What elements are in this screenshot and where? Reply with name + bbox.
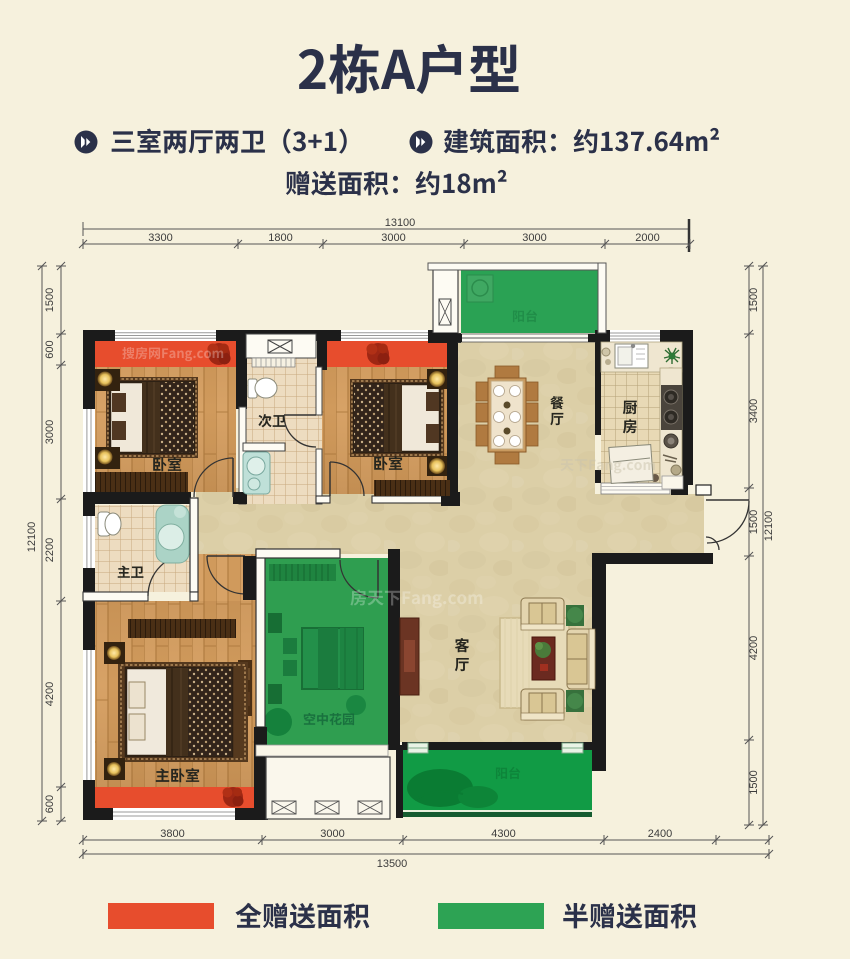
svg-text:3300: 3300	[148, 232, 172, 244]
svg-text:600: 600	[44, 795, 56, 813]
svg-text:3000: 3000	[381, 232, 405, 244]
svg-text:4300: 4300	[491, 828, 515, 840]
svg-text:1500: 1500	[748, 288, 760, 312]
svg-text:12100: 12100	[26, 522, 38, 553]
svg-text:4200: 4200	[748, 636, 760, 660]
svg-text:4200: 4200	[44, 682, 56, 706]
svg-text:2400: 2400	[648, 828, 672, 840]
svg-text:600: 600	[44, 340, 56, 358]
svg-text:3000: 3000	[44, 420, 56, 444]
svg-text:1500: 1500	[748, 770, 760, 794]
svg-text:13100: 13100	[385, 217, 416, 229]
svg-text:13500: 13500	[377, 858, 408, 870]
svg-text:2000: 2000	[635, 232, 659, 244]
svg-text:3000: 3000	[522, 232, 546, 244]
svg-text:3000: 3000	[320, 828, 344, 840]
svg-text:3800: 3800	[160, 828, 184, 840]
svg-text:1500: 1500	[748, 510, 760, 534]
svg-text:2200: 2200	[44, 538, 56, 562]
svg-text:12100: 12100	[763, 511, 775, 542]
svg-text:1800: 1800	[268, 232, 292, 244]
svg-text:3400: 3400	[748, 399, 760, 423]
svg-text:1500: 1500	[44, 288, 56, 312]
